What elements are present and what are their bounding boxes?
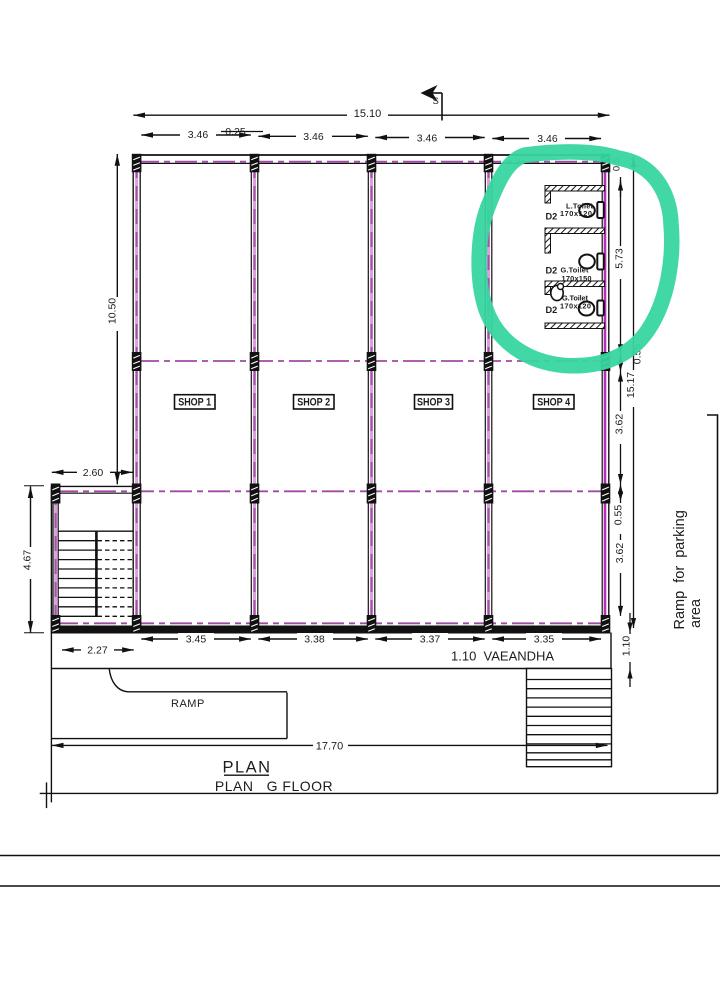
svg-text:S: S	[433, 96, 439, 107]
svg-text:D2: D2	[546, 266, 558, 276]
svg-text:3.62: 3.62	[614, 414, 626, 435]
svg-text:SHOP 4: SHOP 4	[537, 397, 570, 409]
svg-text:RAMP: RAMP	[171, 698, 205, 710]
svg-text:3.37: 3.37	[420, 634, 441, 646]
svg-text:170x150: 170x150	[562, 274, 592, 283]
svg-text:3.45: 3.45	[186, 634, 207, 646]
svg-text:2.27: 2.27	[87, 645, 108, 657]
svg-text:170x120: 170x120	[560, 209, 592, 218]
svg-text:D2: D2	[546, 305, 558, 315]
svg-text:1.10: 1.10	[621, 636, 633, 657]
svg-text:3.35: 3.35	[534, 634, 555, 646]
svg-text:3.46: 3.46	[417, 133, 438, 145]
svg-text:SHOP 2: SHOP 2	[297, 397, 330, 409]
svg-text:D2: D2	[546, 212, 558, 222]
svg-text:3.62: 3.62	[614, 543, 626, 564]
svg-text:3.46: 3.46	[537, 133, 558, 145]
svg-text:3.46: 3.46	[188, 129, 209, 141]
svg-text:5.73: 5.73	[614, 248, 626, 269]
svg-text:4.67: 4.67	[22, 550, 34, 571]
svg-text:10.50: 10.50	[107, 298, 119, 324]
svg-text:1.10 VAEANDHA: 1.10 VAEANDHA	[451, 649, 554, 664]
svg-text:SHOP 1: SHOP 1	[178, 397, 211, 409]
svg-text:3.38: 3.38	[304, 634, 325, 646]
svg-text:PLAN: PLAN	[222, 759, 271, 777]
svg-text:2.60: 2.60	[83, 467, 104, 479]
svg-text:Ramp for parking: Ramp for parking	[672, 510, 688, 629]
svg-text:0.25: 0.25	[225, 126, 246, 138]
svg-text:0.55: 0.55	[613, 505, 625, 526]
svg-text:17.70: 17.70	[316, 741, 344, 753]
svg-text:area: area	[688, 598, 704, 628]
svg-text:15.10: 15.10	[354, 108, 382, 120]
svg-text:170x120: 170x120	[560, 302, 591, 311]
svg-text:15.17: 15.17	[625, 372, 637, 398]
svg-text:SHOP 3: SHOP 3	[417, 397, 450, 409]
svg-text:3.46: 3.46	[303, 131, 324, 143]
svg-text:PLAN G FLOOR: PLAN G FLOOR	[215, 778, 333, 794]
